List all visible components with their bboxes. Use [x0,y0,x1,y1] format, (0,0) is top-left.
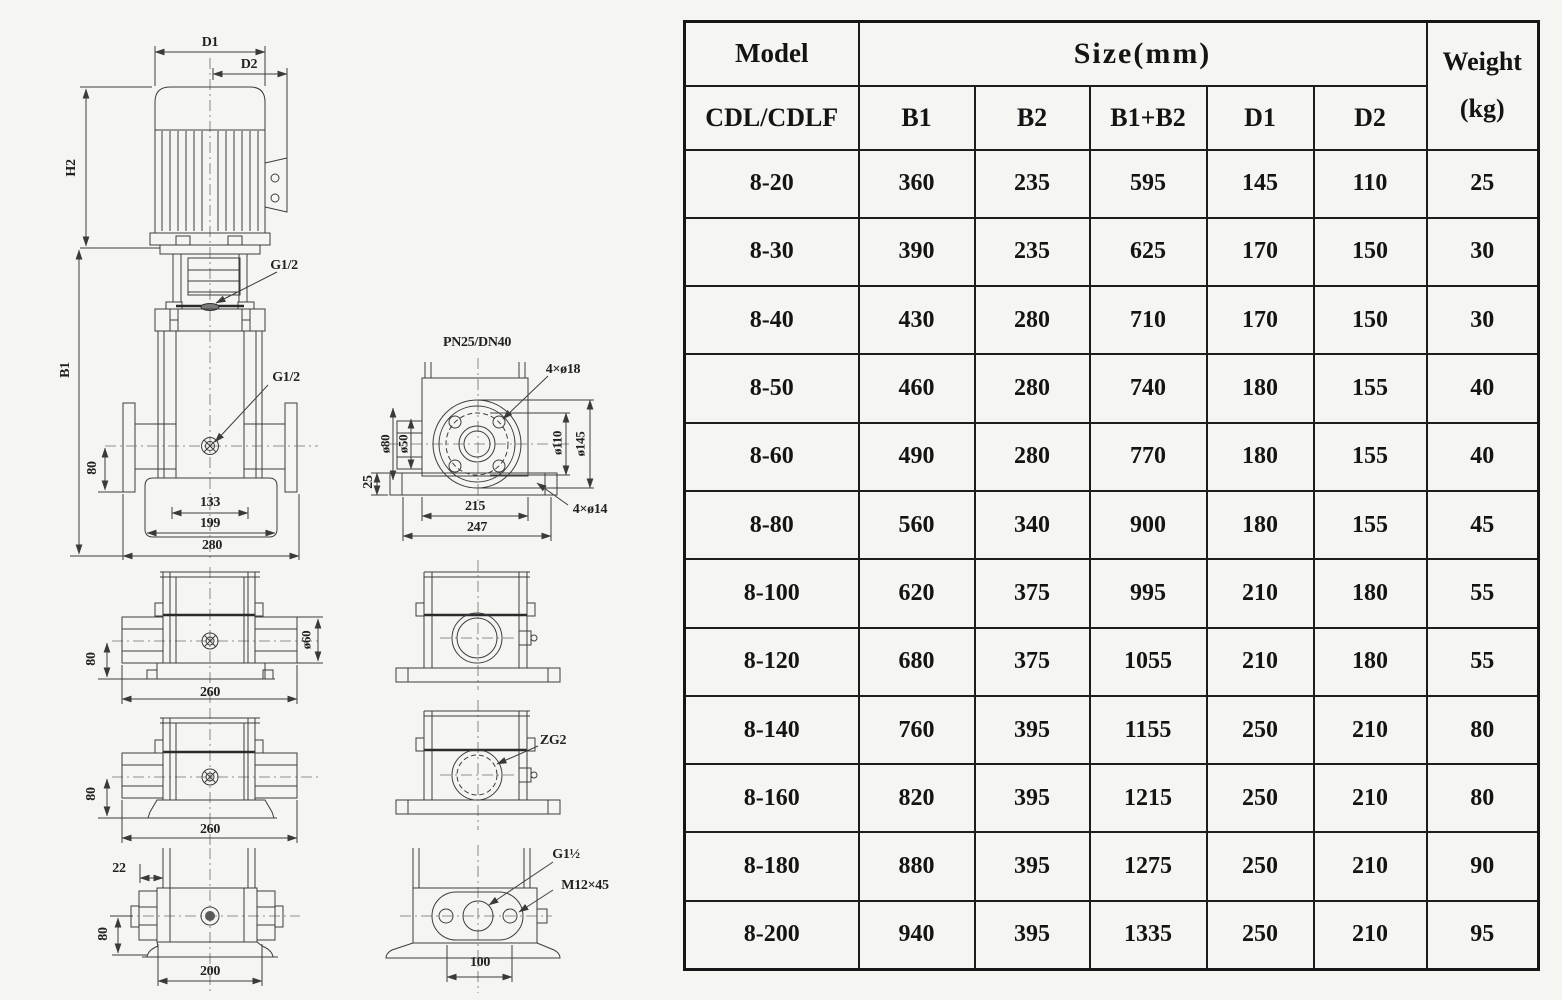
dim-label-25: 25 [362,475,376,488]
cell-b1-plus-b2: 770 [1090,423,1207,491]
cell-b2: 280 [975,423,1090,491]
cell-b1: 430 [859,286,975,354]
cell-d2: 210 [1314,901,1427,969]
dim-label-d1: D1 [202,36,219,50]
cell-b1-plus-b2: 625 [1090,218,1207,286]
dim-label-280: 280 [202,539,222,553]
cell-d2: 155 [1314,491,1427,559]
cell-d1: 170 [1207,286,1314,354]
cell-weight: 90 [1427,832,1539,900]
cell-b1: 760 [859,696,975,764]
cell-model: 8-50 [685,354,859,422]
col-header-d1: D1 [1207,86,1314,150]
cell-weight: 55 [1427,628,1539,696]
cell-b1-plus-b2: 900 [1090,491,1207,559]
cell-b1: 390 [859,218,975,286]
dim-label-260-lower: 260 [200,823,220,837]
col-header-weight: Weight (kg) [1427,22,1539,150]
cell-d2: 155 [1314,423,1427,491]
cell-weight: 55 [1427,559,1539,627]
dim-label-247: 247 [467,521,487,535]
label-g-half-top: G1/2 [270,259,298,273]
cell-model: 8-180 [685,832,859,900]
table-row: 8-5046028074018015540 [685,354,1539,422]
cell-d2: 180 [1314,559,1427,627]
label-flange-spec: PN25/DN40 [443,336,511,350]
cell-weight: 45 [1427,491,1539,559]
cell-d1: 180 [1207,423,1314,491]
dim-label-dia80: ø80 [379,435,392,454]
cell-model: 8-120 [685,628,859,696]
cell-weight: 40 [1427,423,1539,491]
col-header-model-series: CDL/CDLF [685,86,859,150]
cell-d1: 250 [1207,696,1314,764]
cell-b2: 340 [975,491,1090,559]
dim-label-dia145: ø145 [574,432,587,457]
cell-d2: 150 [1314,218,1427,286]
label-m12x45: M12×45 [561,879,608,893]
table-row: 8-8056034090018015545 [685,491,1539,559]
dim-label-b1: B1 [59,362,73,378]
table-row: 8-6049028077018015540 [685,423,1539,491]
cell-d2: 210 [1314,764,1427,832]
dim-label-80-threaded: 80 [97,927,111,940]
pump-spec-sheet: { "page": { "background": "#f5f5f2", "in… [0,0,1562,1000]
cell-d2: 210 [1314,832,1427,900]
cell-weight: 80 [1427,764,1539,832]
cell-b1-plus-b2: 1055 [1090,628,1207,696]
cell-b2: 375 [975,628,1090,696]
cell-b1-plus-b2: 995 [1090,559,1207,627]
table-row: 8-180880395127525021090 [685,832,1539,900]
table-row: 8-120680375105521018055 [685,628,1539,696]
cell-b2: 235 [975,218,1090,286]
oval-flange-view [386,845,560,993]
cell-model: 8-30 [685,218,859,286]
label-zg2: ZG2 [540,734,566,748]
cell-d1: 180 [1207,491,1314,559]
col-header-b2: B2 [975,86,1090,150]
label-base-holes: 4×ø14 [573,503,607,517]
round-port-view-zg2 [396,700,560,830]
cell-b1: 460 [859,354,975,422]
cell-b1-plus-b2: 710 [1090,286,1207,354]
cell-weight: 25 [1427,150,1539,218]
cell-weight: 30 [1427,286,1539,354]
cell-d1: 250 [1207,764,1314,832]
table-row: 8-160820395121525021080 [685,764,1539,832]
col-header-size-group: Size(mm) [859,22,1427,86]
col-header-model: Model [685,22,859,86]
col-header-b1-plus-b2: B1+B2 [1090,86,1207,150]
cell-b1-plus-b2: 595 [1090,150,1207,218]
dim-label-80-front: 80 [86,461,100,474]
cell-d1: 210 [1207,628,1314,696]
dimension-table: Model Size(mm) Weight (kg) CDL/CDLF B1 B… [683,20,1540,971]
dim-label-133: 133 [200,496,220,510]
front-elevation-view [70,46,318,560]
cell-b2: 395 [975,901,1090,969]
cell-b1-plus-b2: 1155 [1090,696,1207,764]
cell-weight: 40 [1427,354,1539,422]
cell-model: 8-160 [685,764,859,832]
cell-d1: 250 [1207,832,1314,900]
dim-label-22: 22 [112,862,125,876]
table-row: 8-2036023559514511025 [685,150,1539,218]
cell-b2: 395 [975,764,1090,832]
cell-d2: 110 [1314,150,1427,218]
cell-b1: 620 [859,559,975,627]
cell-d2: 155 [1314,354,1427,422]
cell-d1: 170 [1207,218,1314,286]
col-header-d2: D2 [1314,86,1427,150]
cell-d1: 250 [1207,901,1314,969]
cell-weight: 30 [1427,218,1539,286]
cell-b1: 820 [859,764,975,832]
table-row: 8-3039023562517015030 [685,218,1539,286]
cell-b2: 280 [975,354,1090,422]
table-row: 8-4043028071017015030 [685,286,1539,354]
cell-d2: 180 [1314,628,1427,696]
cell-b1: 680 [859,628,975,696]
dim-label-h2: H2 [65,159,79,176]
table-row: 8-200940395133525021095 [685,901,1539,969]
cell-b2: 375 [975,559,1090,627]
table-body: 8-20360235595145110258-30390235625170150… [685,150,1539,970]
cell-b1-plus-b2: 740 [1090,354,1207,422]
cell-model: 8-40 [685,286,859,354]
technical-drawing: D1 D2 H2 G1/2 B1 G1/2 80 133 199 280 PN2… [0,0,680,1000]
cell-model: 8-80 [685,491,859,559]
dim-label-dia110: ø110 [551,431,564,455]
dim-label-215: 215 [465,500,485,514]
dim-label-dia50: ø50 [397,435,410,454]
cell-b2: 395 [975,832,1090,900]
cell-b2: 395 [975,696,1090,764]
cell-b1: 880 [859,832,975,900]
col-header-b1: B1 [859,86,975,150]
cell-model: 8-20 [685,150,859,218]
cell-b1: 360 [859,150,975,218]
cell-b1: 940 [859,901,975,969]
label-bolt-circle-holes: 4×ø18 [546,363,580,377]
dim-label-dia60: ø60 [300,631,313,650]
cell-model: 8-200 [685,901,859,969]
cell-model: 8-100 [685,559,859,627]
cell-d1: 145 [1207,150,1314,218]
weight-label-line1: Weight [1428,46,1538,79]
label-g-half-port: G1/2 [272,371,300,385]
label-g1-half: G1½ [552,848,580,862]
dim-label-100: 100 [470,956,490,970]
table-header-row-2: CDL/CDLF B1 B2 B1+B2 D1 D2 [685,86,1539,150]
cell-b1-plus-b2: 1335 [1090,901,1207,969]
cell-model: 8-140 [685,696,859,764]
table-row: 8-140760395115525021080 [685,696,1539,764]
cell-d2: 150 [1314,286,1427,354]
dim-label-d2: D2 [241,58,258,72]
dim-label-80-lower: 80 [85,787,99,800]
cell-b1: 490 [859,423,975,491]
cell-d2: 210 [1314,696,1427,764]
dim-label-260-inline: 260 [200,686,220,700]
cell-d1: 180 [1207,354,1314,422]
cell-b1-plus-b2: 1275 [1090,832,1207,900]
cell-b2: 235 [975,150,1090,218]
round-port-view-a [396,560,560,690]
cell-b1-plus-b2: 1215 [1090,764,1207,832]
dim-label-200: 200 [200,965,220,979]
cell-weight: 80 [1427,696,1539,764]
cell-weight: 95 [1427,901,1539,969]
dim-label-199: 199 [200,517,220,531]
cell-b1: 560 [859,491,975,559]
pipe-connection-view-a [98,567,323,704]
cell-b2: 280 [975,286,1090,354]
dim-label-80-inline: 80 [85,652,99,665]
table-header-row-1: Model Size(mm) Weight (kg) [685,22,1539,86]
cell-model: 8-60 [685,423,859,491]
table-row: 8-10062037599521018055 [685,559,1539,627]
cell-d1: 210 [1207,559,1314,627]
weight-label-line2: (kg) [1428,93,1538,126]
